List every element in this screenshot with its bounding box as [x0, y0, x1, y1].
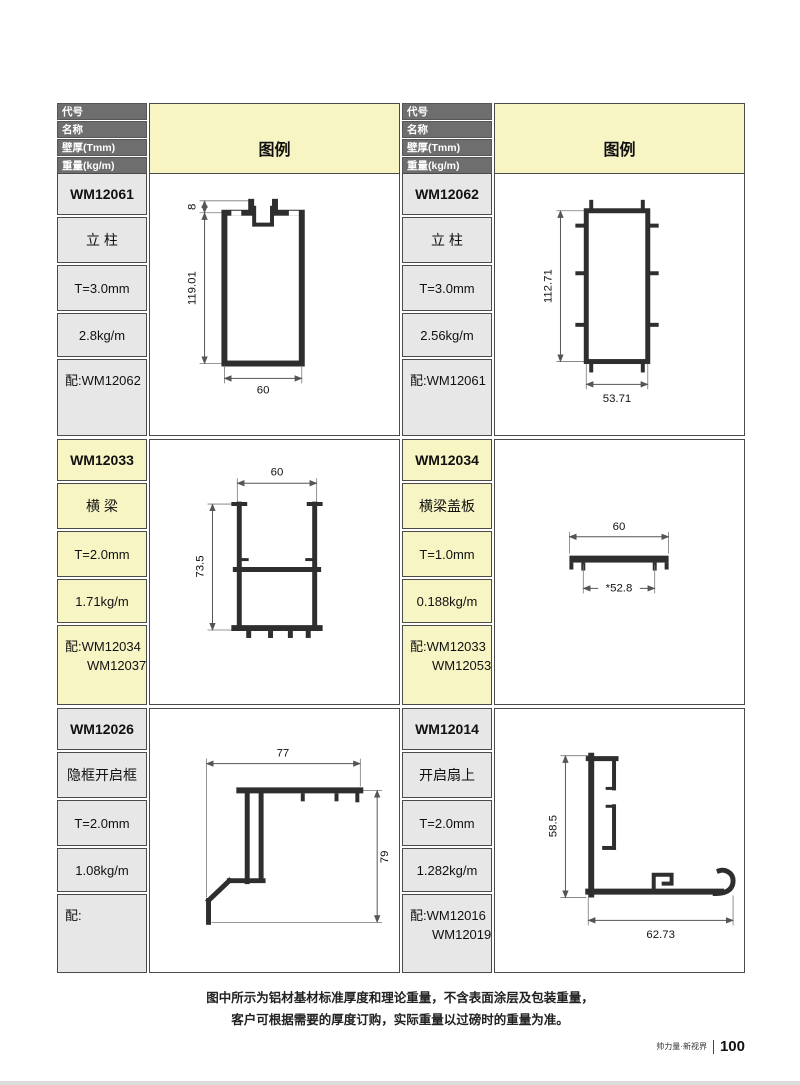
code-cell: WM12014	[402, 708, 492, 750]
dim-top-label: 8	[187, 204, 199, 210]
weight-cell: 2.56kg/m	[402, 313, 492, 357]
table-left: 代号 名称 壁厚(Tmm) 重量(kg/m) 配套 图例 WM12061 立 柱…	[57, 103, 400, 973]
footer-note-line1: 图中所示为铝材基材标准厚度和理论重量，不含表面涂层及包装重量，	[0, 988, 800, 1010]
catalog-page: 代号 名称 壁厚(Tmm) 重量(kg/m) 配套 图例 WM12061 立 柱…	[0, 0, 800, 1085]
name-cell: 开启扇上	[402, 752, 492, 798]
drawing-wm12062: 112.71 53.71	[494, 173, 745, 436]
block-wm12061: WM12061 立 柱 T=3.0mm 2.8kg/m 配:WM12062	[57, 173, 400, 436]
code-cell: WM12026	[57, 708, 147, 750]
profile-drawing: 112.71 53.71	[495, 174, 744, 435]
brand-slogan: 帅力量·新视界	[656, 1041, 707, 1052]
header-row-code: 代号	[57, 103, 147, 120]
thickness-cell: T=2.0mm	[402, 800, 492, 846]
dim-height-label: 58.5	[548, 815, 560, 837]
header-row-thickness: 壁厚(Tmm)	[57, 139, 147, 156]
name-cell: 隐框开启框	[57, 752, 147, 798]
table-right: 代号 名称 壁厚(Tmm) 重量(kg/m) 配套 图例 WM12062 立 柱…	[402, 103, 745, 973]
name-cell: 横 梁	[57, 483, 147, 529]
table-left-header: 代号 名称 壁厚(Tmm) 重量(kg/m) 配套 图例	[57, 103, 400, 170]
weight-cell: 1.282kg/m	[402, 848, 492, 892]
header-row-name: 名称	[57, 121, 147, 138]
block-wm12062: WM12062 立 柱 T=3.0mm 2.56kg/m 配:WM12061	[402, 173, 745, 436]
dim-width2-label: *52.8	[606, 582, 633, 594]
drawing-wm12034: 60 *52.8	[494, 439, 745, 705]
weight-cell: 2.8kg/m	[57, 313, 147, 357]
thickness-cell: T=3.0mm	[57, 265, 147, 311]
drawing-wm12026: 77 79	[149, 708, 400, 973]
profile-drawing: 77 79	[150, 709, 399, 972]
match-cell: 配:	[57, 894, 147, 973]
code-cell: WM12061	[57, 173, 147, 215]
match-cell: 配:WM12034 WM12037	[57, 625, 147, 705]
page-number: 100	[720, 1038, 745, 1055]
dim-width-label: 53.71	[603, 393, 632, 405]
footer-note-line2: 客户可根据需要的厚度订购，实际重量以过磅时的重量为准。	[0, 1010, 800, 1032]
thickness-cell: T=3.0mm	[402, 265, 492, 311]
page-footer: 帅力量·新视界 100	[656, 1038, 745, 1055]
header-row-code: 代号	[402, 103, 492, 120]
dim-width-label: 60	[613, 521, 626, 533]
weight-cell: 1.71kg/m	[57, 579, 147, 623]
thickness-cell: T=2.0mm	[57, 800, 147, 846]
profile-drawing: 58.5 62.73	[495, 709, 744, 972]
code-cell: WM12033	[57, 439, 147, 481]
dim-height-label: 119.01	[187, 271, 199, 305]
bottom-strip	[0, 1081, 800, 1085]
tables-container: 代号 名称 壁厚(Tmm) 重量(kg/m) 配套 图例 WM12061 立 柱…	[57, 103, 745, 973]
weight-cell: 0.188kg/m	[402, 579, 492, 623]
header-row-name: 名称	[402, 121, 492, 138]
header-row-weight: 重量(kg/m)	[57, 157, 147, 174]
block-wm12014: WM12014 开启扇上 T=2.0mm 1.282kg/m 配:WM12016…	[402, 708, 745, 973]
dim-width-label: 60	[257, 384, 270, 396]
profile-drawing: 60 *52.8	[495, 440, 744, 704]
dim-width-label: 60	[271, 466, 284, 478]
code-cell: WM12062	[402, 173, 492, 215]
block-wm12034: WM12034 横梁盖板 T=1.0mm 0.188kg/m 配:WM12033…	[402, 439, 745, 705]
thickness-cell: T=1.0mm	[402, 531, 492, 577]
drawing-wm12061: 8 119.01 60	[149, 173, 400, 436]
dim-width-label: 62.73	[646, 929, 675, 941]
block-wm12033: WM12033 横 梁 T=2.0mm 1.71kg/m 配:WM12034 W…	[57, 439, 400, 705]
code-cell: WM12034	[402, 439, 492, 481]
dim-height-label: 73.5	[195, 555, 207, 577]
dim-width-label: 77	[277, 748, 290, 760]
footer-divider	[713, 1040, 714, 1054]
name-cell: 横梁盖板	[402, 483, 492, 529]
dim-height-label: 112.71	[543, 269, 555, 303]
profile-drawing: 8 119.01 60	[150, 174, 399, 435]
match-cell: 配:WM12033 WM12053	[402, 625, 492, 705]
match-cell: 配:WM12016 WM12019	[402, 894, 492, 973]
block-wm12026: WM12026 隐框开启框 T=2.0mm 1.08kg/m 配:	[57, 708, 400, 973]
dim-height-label: 79	[379, 851, 391, 864]
footer-note: 图中所示为铝材基材标准厚度和理论重量，不含表面涂层及包装重量， 客户可根据需要的…	[0, 988, 800, 1032]
table-right-header: 代号 名称 壁厚(Tmm) 重量(kg/m) 配套 图例	[402, 103, 745, 170]
match-cell: 配:WM12062	[57, 359, 147, 436]
name-cell: 立 柱	[57, 217, 147, 263]
header-row-thickness: 壁厚(Tmm)	[402, 139, 492, 156]
drawing-wm12033: 60 73.5	[149, 439, 400, 705]
header-row-weight: 重量(kg/m)	[402, 157, 492, 174]
name-cell: 立 柱	[402, 217, 492, 263]
profile-drawing: 60 73.5	[150, 440, 399, 704]
thickness-cell: T=2.0mm	[57, 531, 147, 577]
weight-cell: 1.08kg/m	[57, 848, 147, 892]
match-cell: 配:WM12061	[402, 359, 492, 436]
drawing-wm12014: 58.5 62.73	[494, 708, 745, 973]
